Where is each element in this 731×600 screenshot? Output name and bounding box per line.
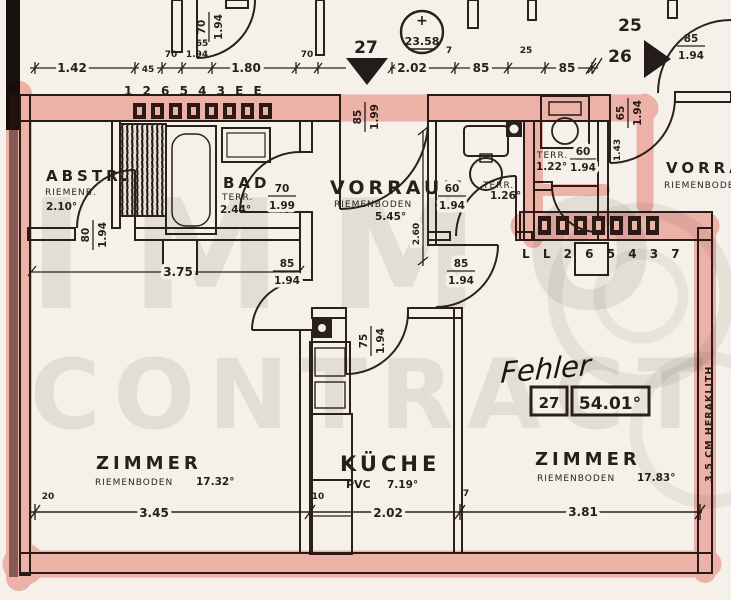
dim-20: 20 — [42, 492, 55, 502]
room-floor-kueche: PVC — [346, 478, 371, 491]
dim-143: 1.43 — [613, 139, 623, 161]
label-25-top: 25 — [618, 16, 642, 36]
label-65: 65 — [196, 39, 209, 49]
dim-85b: 85 — [559, 61, 576, 75]
door-size-zimmer-right-h: 1.94 — [448, 275, 474, 287]
door-marker-26-label: 26 — [608, 47, 632, 67]
dim-3-45: 3.45 — [139, 506, 169, 520]
door-size-zimmer-right-w: 85 — [454, 258, 469, 270]
door-size-abstr-h: 1.94 — [97, 222, 109, 248]
dim-2-02-bottom: 2.02 — [373, 506, 403, 520]
door-size-zimmer-left-h: 1.94 — [274, 275, 300, 287]
dim-10: 10 — [312, 492, 325, 502]
dim-194: 1.94 — [186, 50, 208, 60]
room-area-zimmer-left: 17.32° — [196, 476, 234, 488]
dim-260: 2.60 — [412, 223, 422, 245]
room-floor-abstr: RIEMENB. — [45, 188, 97, 198]
room-name-abstr: ABSTR. — [46, 167, 132, 185]
heraklith-note-text: 3.5 CM HERAKLITH — [704, 366, 715, 482]
dim-70a: 70 — [165, 50, 178, 60]
room-area-vorraum: 5.45° — [375, 211, 406, 223]
vent-box — [506, 121, 522, 137]
elevation-plus: + — [416, 13, 428, 29]
door-size-wc-w: 60 — [445, 183, 460, 195]
dim-375-label: 3.75 — [163, 265, 193, 279]
dim-70b: 70 — [301, 50, 314, 60]
door-size-wc-h: 1.94 — [439, 200, 465, 212]
room-floor-zimmer-left: RIEMENBODEN — [95, 478, 173, 488]
highlight-corner-blob — [3, 543, 45, 585]
room-name-bad: BAD — [223, 174, 271, 192]
door-size-abstr-w: 80 — [80, 228, 92, 243]
door-size-bad-h: 1.99 — [269, 200, 295, 212]
door-size-zimmer-left-w: 85 — [280, 258, 295, 270]
elevation-value: 23.58 — [405, 35, 440, 48]
door-marker-27-label: 27 — [354, 38, 378, 58]
room-area-bad: 2.44° — [220, 204, 251, 216]
room-name-kueche: KÜCHE — [340, 451, 440, 476]
door-size-top-left-h: 1.94 — [213, 14, 225, 40]
room-area-zimmer-right: 17.83° — [637, 472, 675, 484]
dim-2-02: 2.02 — [397, 61, 427, 75]
room-floor-bad: TERR. — [221, 193, 253, 203]
floorplan-scan: IMMO CONTRACT — [0, 0, 731, 600]
dim-85a: 85 — [473, 61, 490, 75]
door-size-top-right-h: 1.94 — [678, 50, 704, 62]
room-area-abstr: 2.10° — [46, 201, 77, 213]
heraklith-note: 3.5 CM HERAKLITH — [704, 366, 715, 482]
room-name-zimmer-left: ZIMMER — [96, 453, 202, 474]
dim-25: 25 — [520, 46, 533, 56]
room-floor-zimmer-right: RIEMENBODEN — [537, 474, 615, 484]
over-highlight-text: 3.5 CM HERAKLITH — [704, 366, 715, 482]
dim-1-42: 1.42 — [57, 61, 87, 75]
dim-143-label: 1.43 — [613, 139, 623, 161]
total-area-box-number: 27 — [539, 394, 560, 412]
door-size-kueche-h: 1.94 — [375, 328, 387, 354]
number-row-right: L L 2 6 5 4 3 7 — [522, 247, 684, 261]
door-size-bad-w: 70 — [275, 183, 290, 195]
door-size-top-left-w: 70 — [196, 20, 208, 35]
dim-3-81: 3.81 — [568, 505, 598, 519]
dim-260-label: 2.60 — [412, 223, 422, 245]
room-floor-vorraum: RIEMENBODEN — [334, 200, 412, 210]
room-name-vorraum-neighbor: VORRAUM — [666, 159, 731, 177]
room-area-kueche: 7.19° — [387, 479, 418, 491]
dim-7-bottom: 7 — [463, 489, 469, 499]
dim-1-80: 1.80 — [231, 61, 261, 75]
total-area-box-value: 54.01° — [579, 394, 641, 414]
dim-7-top: 7 — [446, 46, 452, 56]
dim-45: 45 — [142, 65, 155, 75]
door-size-wash-w: 60 — [576, 146, 591, 158]
door-size-top-right-w: 85 — [684, 33, 699, 45]
door-size-wash-h: 1.94 — [570, 162, 596, 174]
room-label-vorraum-neighbor: VORRAUM RIEMENBODEN — [664, 159, 731, 191]
room-area-wc: 1.26° — [490, 190, 521, 202]
door-size-kueche-w: 75 — [358, 334, 370, 349]
room-name-zimmer-right: ZIMMER — [535, 449, 641, 470]
room-floor-vorraum-neighbor: RIEMENBODEN — [664, 181, 731, 191]
